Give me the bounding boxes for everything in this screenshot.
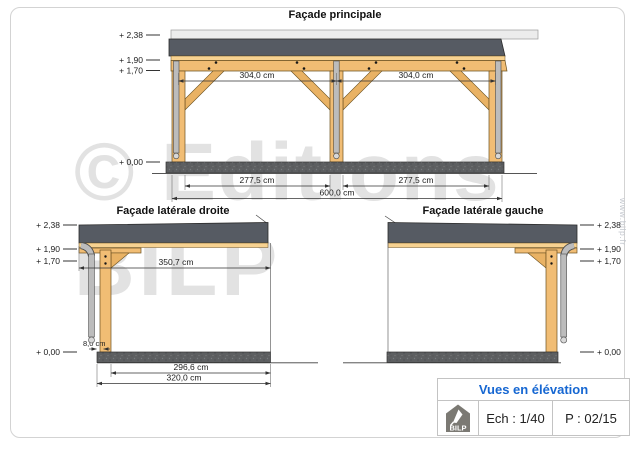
dim-total-width: 600,0 cm <box>320 188 355 198</box>
dimension-bottom: 296,6 cm 320,0 cm <box>97 362 271 387</box>
roof-fascia <box>169 39 505 56</box>
level-000: + 0,00 <box>119 157 143 167</box>
knee-brace <box>343 71 382 110</box>
level-000: + 0,00 <box>597 347 621 357</box>
page-number-label: P : 02/15 <box>553 401 629 436</box>
level-238: + 2,38 <box>36 220 60 230</box>
level-marks-right: + 2,38 + 1,90 + 1,70 + 0,00 <box>580 220 621 357</box>
view-laterale-droite: Façade latérale droite 8,0 cm + 2,38 + 1… <box>36 205 318 387</box>
roof-underside-board <box>171 56 505 61</box>
dim-bay-left: 304,0 cm <box>240 70 275 80</box>
view-laterale-gauche: Façade latérale gauche + 2,38 + 1,90 + 1… <box>343 205 621 363</box>
level-000: + 0,00 <box>36 347 60 357</box>
knee-brace <box>111 253 129 268</box>
level-170: + 1,70 <box>597 256 621 266</box>
title-block-title: Vues en élévation <box>438 379 629 401</box>
view-title: Façade principale <box>289 9 382 21</box>
downspout-right <box>496 61 502 153</box>
logo-text: BILP <box>449 424 466 433</box>
dim-clear-right: 277,5 cm <box>399 175 434 185</box>
downspout-left <box>174 61 180 153</box>
knee-brace <box>450 71 489 110</box>
post-side <box>100 250 111 352</box>
scale-label: Ech : 1/40 <box>479 401 553 436</box>
title-block: Vues en élévation BILP Ech : 1/40 P : 02… <box>437 378 630 436</box>
concrete-slab <box>387 352 558 363</box>
roof-side <box>388 223 577 244</box>
view-title: Façade latérale gauche <box>422 205 543 217</box>
downspout-outlet <box>561 337 567 343</box>
concrete-slab <box>166 162 504 173</box>
dim-inner: 296,6 cm <box>174 362 209 372</box>
dim-bay-right: 304,0 cm <box>399 70 434 80</box>
level-170: + 1,70 <box>36 256 60 266</box>
roof-deck-edge <box>171 30 538 39</box>
downspout-pipe <box>561 254 567 337</box>
bilp-logo: BILP <box>445 404 471 433</box>
roof-board <box>388 243 577 248</box>
knee-brace <box>528 253 546 268</box>
downspout-outlet <box>173 153 179 159</box>
dim-total-depth: 320,0 cm <box>167 373 202 383</box>
knee-brace <box>185 71 224 110</box>
level-190: + 1,90 <box>36 244 60 254</box>
level-190: + 1,90 <box>119 55 143 65</box>
view-title: Façade latérale droite <box>116 205 229 217</box>
level-190: + 1,90 <box>597 244 621 254</box>
post-side <box>546 250 557 352</box>
downspout-outlet <box>495 153 501 159</box>
roof-side <box>79 223 268 244</box>
view-facade-principale: Façade principale + 2,38 + 1, <box>119 9 538 202</box>
level-marks-left: + 2,38 + 1,90 + 1,70 + 0,00 <box>36 220 77 357</box>
level-238: + 2,38 <box>119 30 143 40</box>
dim-clear-left: 277,5 cm <box>240 175 275 185</box>
downspout-pipe <box>89 254 95 337</box>
concrete-slab <box>97 352 271 363</box>
dimension-bottom: 277,5 cm 277,5 cm 600,0 cm <box>172 175 502 202</box>
bilp-logo-cell: BILP <box>438 401 479 436</box>
dim-roof-depth: 350,7 cm <box>159 257 194 267</box>
downspout-outlet <box>334 153 340 159</box>
level-238: + 2,38 <box>597 220 621 230</box>
level-170: + 1,70 <box>119 66 143 76</box>
knee-brace <box>291 71 330 110</box>
level-marks-left: + 2,38 + 1,90 + 1,70 + 0,00 <box>119 30 160 167</box>
downspout-outlet <box>89 337 95 343</box>
roof-board <box>79 243 268 248</box>
